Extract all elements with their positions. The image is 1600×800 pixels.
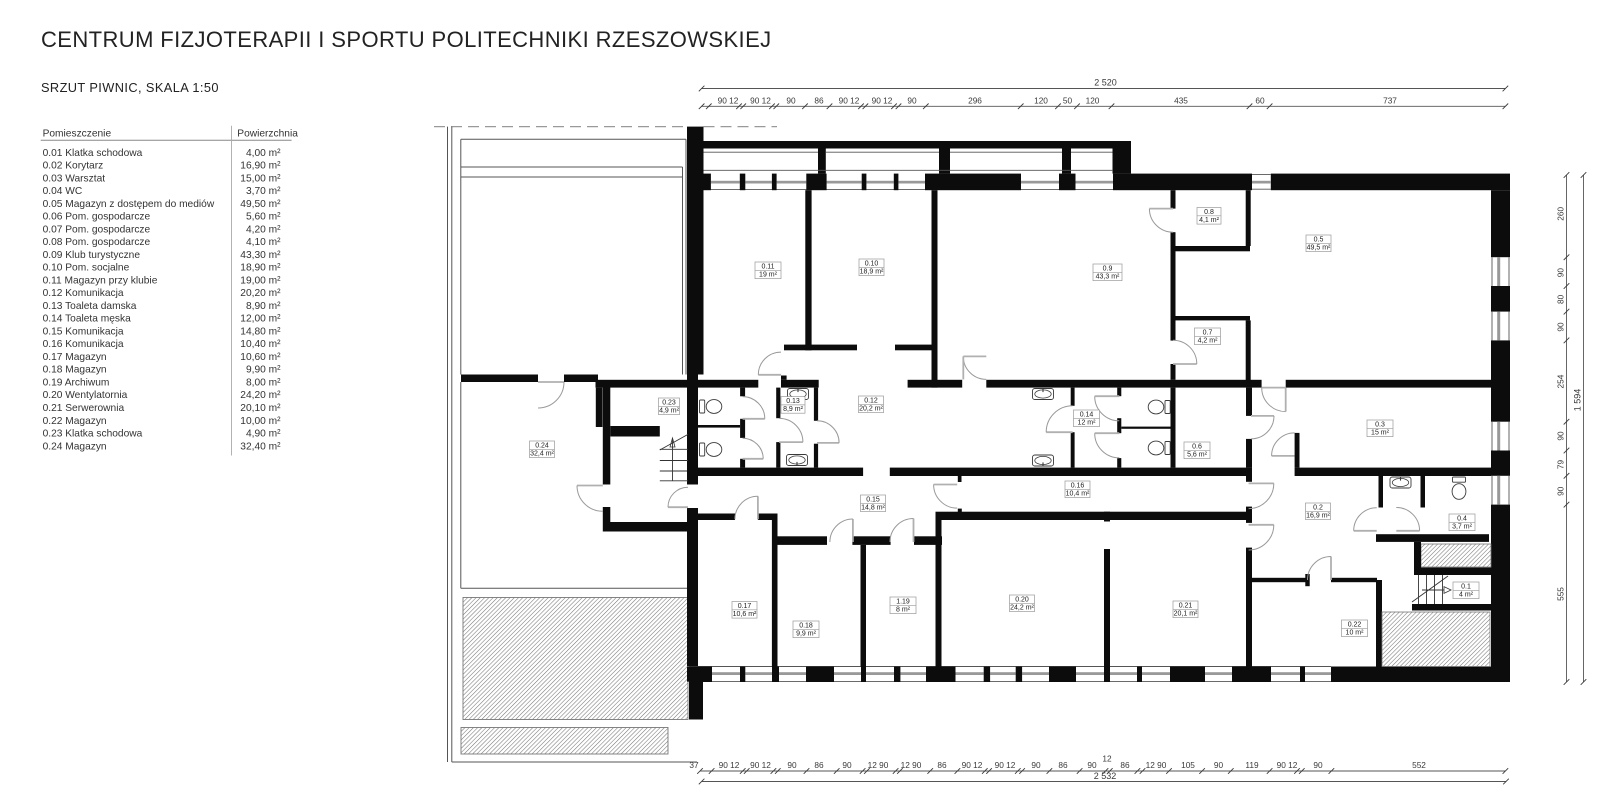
svg-text:8,90 m²: 8,90 m² (246, 301, 281, 312)
svg-text:90: 90 (1556, 486, 1566, 496)
svg-text:90: 90 (1214, 760, 1224, 770)
svg-text:2 520: 2 520 (1094, 78, 1117, 88)
svg-text:90: 90 (1556, 322, 1566, 332)
svg-text:435: 435 (1174, 96, 1188, 106)
svg-text:4,90 m²: 4,90 m² (246, 429, 281, 440)
svg-text:90: 90 (1031, 760, 1041, 770)
svg-text:49,5 m²: 49,5 m² (1307, 245, 1331, 252)
svg-text:90: 90 (787, 760, 797, 770)
svg-text:0.15: 0.15 (866, 496, 880, 503)
svg-text:0.02 Korytarz: 0.02 Korytarz (43, 161, 104, 172)
svg-text:18,90 m²: 18,90 m² (240, 263, 281, 274)
svg-text:0.1: 0.1 (1461, 583, 1471, 590)
svg-text:9,9 m²: 9,9 m² (796, 631, 817, 638)
svg-text:0.18: 0.18 (799, 622, 813, 629)
svg-text:120: 120 (1086, 96, 1100, 106)
svg-text:1 594: 1 594 (1573, 389, 1583, 412)
svg-text:5,60 m²: 5,60 m² (246, 212, 281, 223)
svg-text:0.3: 0.3 (1375, 421, 1385, 428)
svg-text:12: 12 (1102, 754, 1112, 764)
svg-text:80: 80 (1556, 294, 1566, 304)
svg-text:737: 737 (1383, 96, 1397, 106)
svg-text:3,70 m²: 3,70 m² (246, 186, 281, 197)
svg-text:12,00 m²: 12,00 m² (240, 314, 281, 325)
svg-text:86: 86 (814, 760, 824, 770)
svg-text:0.22: 0.22 (1348, 621, 1362, 628)
svg-text:0.11 Magazyn przy klubie: 0.11 Magazyn przy klubie (43, 275, 158, 286)
svg-text:0.10 Pom. socjalne: 0.10 Pom. socjalne (43, 263, 130, 274)
svg-text:86: 86 (1058, 760, 1068, 770)
svg-text:1.19: 1.19 (896, 598, 910, 605)
svg-text:20,1 m²: 20,1 m² (1174, 611, 1198, 618)
svg-text:12 90: 12 90 (868, 760, 889, 770)
svg-text:15 m²: 15 m² (1371, 430, 1390, 437)
svg-text:0.23: 0.23 (662, 399, 676, 406)
svg-text:0.4: 0.4 (1457, 515, 1467, 522)
svg-text:0.20: 0.20 (1015, 596, 1029, 603)
svg-text:16,9 m²: 16,9 m² (1306, 513, 1330, 520)
svg-text:0.01 Klatka schodowa: 0.01 Klatka schodowa (43, 148, 143, 159)
svg-text:0.14 Toaleta męska: 0.14 Toaleta męska (43, 314, 131, 325)
svg-text:SRZUT PIWNIC, SKALA 1:50: SRZUT PIWNIC, SKALA 1:50 (41, 80, 219, 95)
svg-text:4,9 m²: 4,9 m² (659, 408, 680, 415)
svg-text:0.7: 0.7 (1203, 329, 1213, 336)
svg-text:86: 86 (937, 760, 947, 770)
svg-text:Powierzchnia: Powierzchnia (237, 129, 298, 140)
svg-text:552: 552 (1412, 760, 1426, 770)
svg-text:18,9 m²: 18,9 m² (860, 269, 884, 276)
svg-text:19,00 m²: 19,00 m² (240, 275, 281, 286)
svg-text:0.18 Magazyn: 0.18 Magazyn (43, 365, 107, 376)
svg-text:0.11: 0.11 (761, 263, 774, 270)
svg-text:19 m²: 19 m² (759, 272, 778, 279)
svg-text:0.21: 0.21 (1179, 602, 1193, 609)
svg-text:90 12: 90 12 (872, 96, 893, 106)
svg-text:37: 37 (689, 760, 699, 770)
svg-text:0.22 Magazyn: 0.22 Magazyn (43, 416, 107, 427)
svg-text:0.2: 0.2 (1313, 504, 1323, 511)
svg-text:0.8: 0.8 (1204, 209, 1214, 216)
svg-text:90: 90 (786, 96, 796, 106)
svg-text:90: 90 (842, 760, 852, 770)
svg-text:0.04 WC: 0.04 WC (43, 186, 83, 197)
svg-text:10,4 m²: 10,4 m² (1066, 491, 1090, 498)
svg-text:8 m²: 8 m² (896, 607, 911, 614)
svg-text:90 12: 90 12 (839, 96, 860, 106)
svg-text:0.13 Toaleta damska: 0.13 Toaleta damska (43, 301, 137, 312)
svg-text:90 12: 90 12 (750, 760, 771, 770)
svg-text:0.20 Wentylatornia: 0.20 Wentylatornia (43, 390, 128, 401)
svg-text:555: 555 (1556, 587, 1566, 601)
svg-text:Pomieszczenie: Pomieszczenie (43, 129, 112, 140)
svg-text:86: 86 (1120, 760, 1130, 770)
svg-text:10 m²: 10 m² (1346, 630, 1365, 637)
svg-text:90 12: 90 12 (995, 760, 1016, 770)
svg-text:12 m²: 12 m² (1078, 420, 1097, 427)
svg-text:0.6: 0.6 (1192, 443, 1202, 450)
svg-text:0.05 Magazyn z dostępem do med: 0.05 Magazyn z dostępem do mediów (43, 199, 215, 210)
svg-text:0.9: 0.9 (1103, 265, 1113, 272)
svg-text:0.13: 0.13 (786, 398, 800, 405)
svg-text:296: 296 (968, 96, 982, 106)
svg-text:90: 90 (907, 96, 917, 106)
svg-text:16,90 m²: 16,90 m² (240, 161, 281, 172)
svg-text:0.19 Archiwum: 0.19 Archiwum (43, 378, 110, 389)
svg-text:10,40 m²: 10,40 m² (240, 339, 281, 350)
svg-text:12 90: 12 90 (1146, 760, 1167, 770)
svg-text:90: 90 (1556, 431, 1566, 441)
svg-text:14,8 m²: 14,8 m² (861, 505, 885, 512)
svg-text:0.14: 0.14 (1080, 411, 1094, 418)
svg-text:90: 90 (1556, 268, 1566, 278)
svg-text:0.15 Komunikacja: 0.15 Komunikacja (43, 326, 124, 337)
svg-text:119: 119 (1245, 760, 1259, 770)
svg-text:3,7 m²: 3,7 m² (1452, 524, 1473, 531)
svg-text:15,00 m²: 15,00 m² (240, 173, 281, 184)
svg-text:90 12: 90 12 (718, 96, 739, 106)
svg-text:0.09 Klub turystyczne: 0.09 Klub turystyczne (43, 250, 141, 261)
svg-text:260: 260 (1556, 206, 1566, 220)
svg-text:12 90: 12 90 (901, 760, 922, 770)
svg-text:90: 90 (1087, 760, 1097, 770)
svg-text:49,50 m²: 49,50 m² (240, 199, 281, 210)
svg-text:0.12 Komunikacja: 0.12 Komunikacja (43, 288, 124, 299)
svg-text:90 12: 90 12 (750, 96, 771, 106)
svg-text:2 532: 2 532 (1094, 771, 1117, 781)
svg-text:4 m²: 4 m² (1459, 592, 1474, 599)
svg-text:10,60 m²: 10,60 m² (240, 352, 281, 363)
svg-text:10,00 m²: 10,00 m² (240, 416, 281, 427)
svg-text:0.07 Pom. gospodarcze: 0.07 Pom. gospodarcze (43, 224, 151, 235)
svg-text:32,4 m²: 32,4 m² (530, 451, 554, 458)
svg-text:CENTRUM FIZJOTERAPII I SPORTU: CENTRUM FIZJOTERAPII I SPORTU POLITECHNI… (41, 27, 772, 52)
svg-text:0.12: 0.12 (864, 397, 878, 404)
svg-text:0.21 Serwerownia: 0.21 Serwerownia (43, 403, 125, 414)
svg-text:9,90 m²: 9,90 m² (246, 365, 281, 376)
svg-text:90: 90 (1313, 760, 1323, 770)
svg-text:0.06 Pom. gospodarcze: 0.06 Pom. gospodarcze (43, 212, 151, 223)
svg-text:105: 105 (1181, 760, 1195, 770)
svg-text:60: 60 (1255, 96, 1265, 106)
svg-text:0.17: 0.17 (738, 603, 752, 610)
svg-text:5,6 m²: 5,6 m² (1187, 452, 1208, 459)
svg-text:20,2 m²: 20,2 m² (859, 406, 883, 413)
svg-text:14,80 m²: 14,80 m² (240, 326, 281, 337)
svg-text:0.17 Magazyn: 0.17 Magazyn (43, 352, 107, 363)
svg-text:90 12: 90 12 (962, 760, 983, 770)
svg-text:79: 79 (1556, 460, 1566, 470)
svg-text:4,10 m²: 4,10 m² (246, 237, 281, 248)
svg-text:0.5: 0.5 (1314, 236, 1324, 243)
svg-text:0.23 Klatka schodowa: 0.23 Klatka schodowa (43, 429, 143, 440)
svg-text:8,00 m²: 8,00 m² (246, 378, 281, 389)
svg-text:0.16: 0.16 (1071, 482, 1085, 489)
svg-text:120: 120 (1034, 96, 1048, 106)
svg-text:32,40 m²: 32,40 m² (240, 441, 281, 452)
svg-text:4,20 m²: 4,20 m² (246, 224, 281, 235)
svg-text:0.24: 0.24 (535, 442, 549, 449)
svg-text:0.10: 0.10 (865, 260, 879, 267)
svg-text:90 12: 90 12 (719, 760, 740, 770)
svg-text:20,20 m²: 20,20 m² (240, 288, 281, 299)
svg-text:254: 254 (1556, 374, 1566, 388)
svg-text:20,10 m²: 20,10 m² (240, 403, 281, 414)
svg-text:43,30 m²: 43,30 m² (240, 250, 281, 261)
svg-text:50: 50 (1063, 96, 1073, 106)
svg-text:4,00 m²: 4,00 m² (246, 148, 281, 159)
svg-text:0.03 Warsztat: 0.03 Warsztat (43, 173, 106, 184)
svg-text:4,2 m²: 4,2 m² (1198, 338, 1219, 345)
svg-text:0.24 Magazyn: 0.24 Magazyn (43, 441, 107, 452)
svg-text:0.08 Pom. gospodarcze: 0.08 Pom. gospodarcze (43, 237, 151, 248)
svg-text:8,9 m²: 8,9 m² (783, 406, 804, 413)
svg-text:86: 86 (814, 96, 824, 106)
svg-text:24,20 m²: 24,20 m² (240, 390, 281, 401)
svg-text:90 12: 90 12 (1277, 760, 1298, 770)
svg-text:4,1 m²: 4,1 m² (1199, 217, 1220, 224)
svg-text:0.16 Komunikacja: 0.16 Komunikacja (43, 339, 124, 350)
svg-text:24,2 m²: 24,2 m² (1010, 605, 1034, 612)
svg-text:10,6 m²: 10,6 m² (733, 611, 757, 618)
svg-text:43,3 m²: 43,3 m² (1096, 274, 1120, 281)
